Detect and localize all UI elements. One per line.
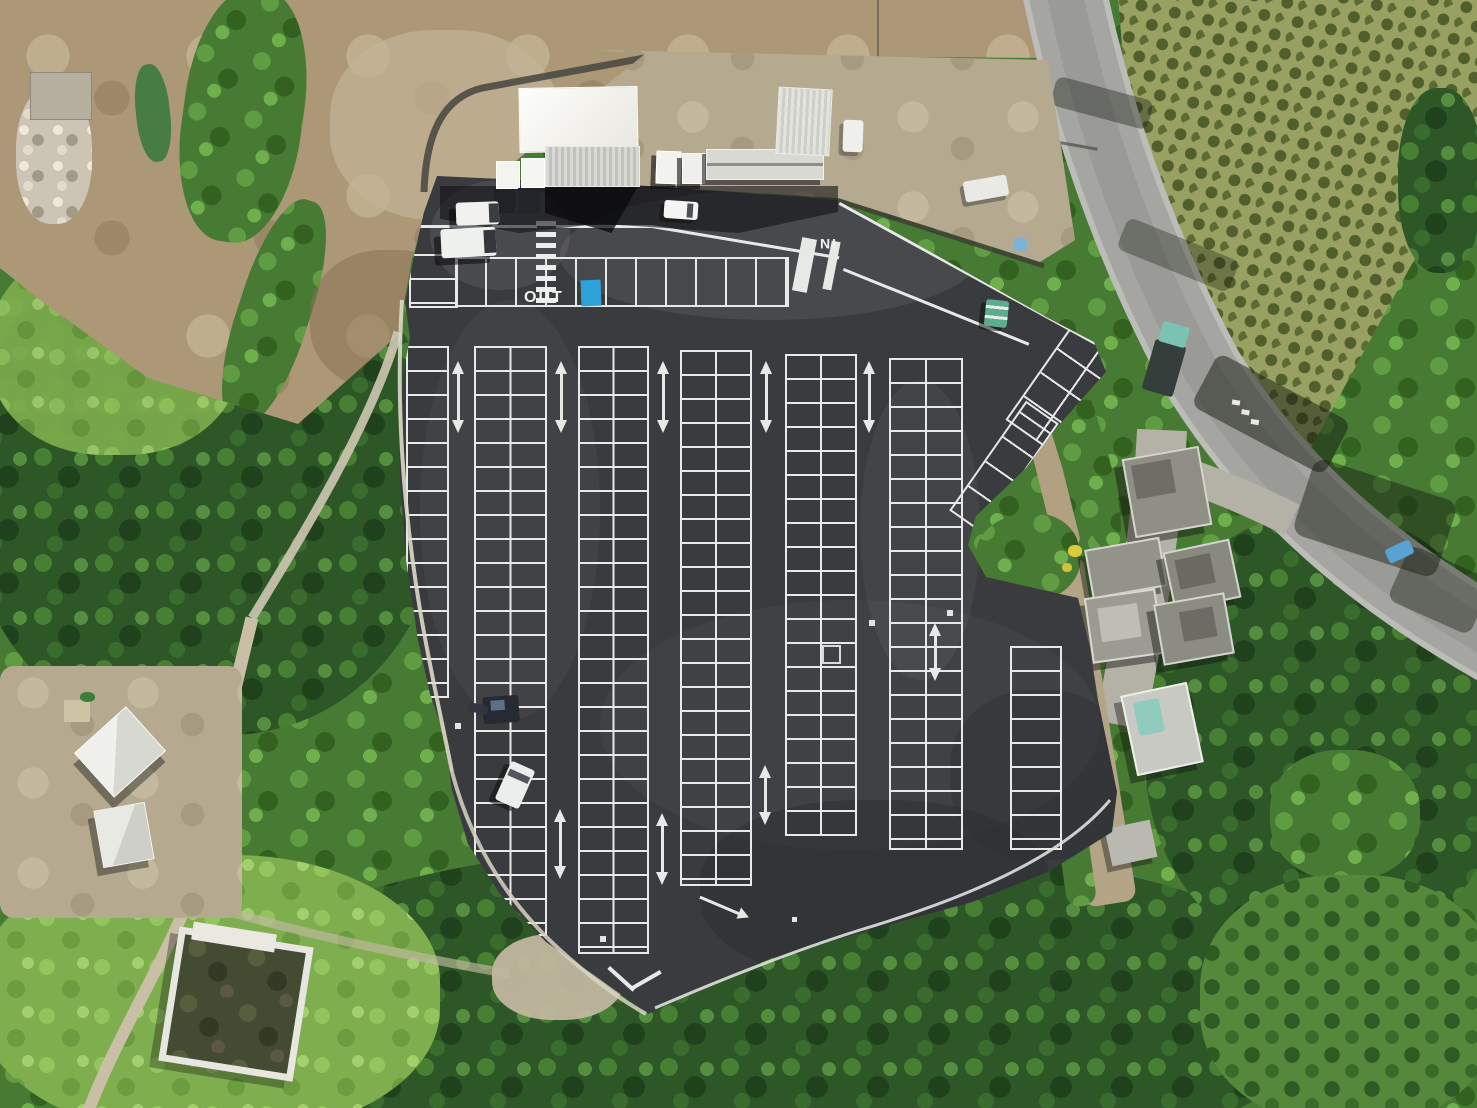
loader-cab [490,700,505,711]
white-container [655,151,681,185]
white-box-van-1 [456,201,500,225]
white-kei-truck [663,200,698,220]
green-dumpster [984,299,1010,328]
van-rear-dark [483,230,496,254]
dark-container [518,188,540,214]
southeast-edge-line [655,800,1110,1008]
car-windshield [507,769,530,784]
west-wall-cap [400,300,452,772]
white-truck-yard [842,120,863,153]
main-building-white-roof [518,86,638,153]
truck-window [686,203,693,217]
main-building-ribbed-roof [545,146,640,187]
blue-bin-yard [1014,238,1027,252]
aerial-photo: OUT IN [0,0,1477,1108]
large-gray-ribbed-roof [775,87,832,157]
white-container [682,153,705,184]
southwest-wall-cap [452,772,646,1014]
white-shed [521,158,545,188]
white-box-van-2 [440,227,496,259]
roof-ridge-line [707,163,823,166]
van-rear-dark [489,203,500,222]
white-shed [496,161,520,189]
